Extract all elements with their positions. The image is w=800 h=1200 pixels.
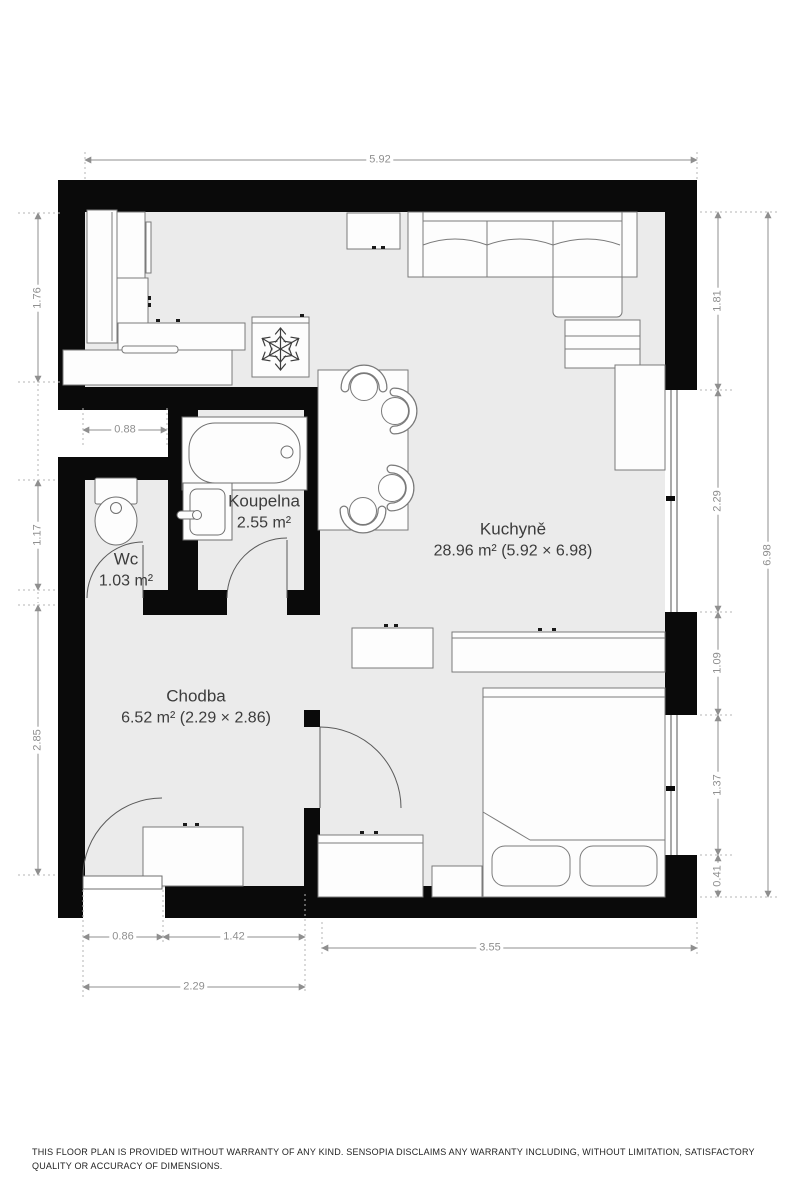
dim-label-bottom-3: 3.55 bbox=[476, 942, 503, 955]
sink-vanity bbox=[177, 483, 232, 540]
wall-right-lower bbox=[665, 855, 697, 918]
wall-bath-bottom-a bbox=[143, 590, 227, 615]
wall-bottom-left bbox=[58, 886, 83, 918]
kitchen-sink bbox=[122, 346, 178, 353]
dim-label-left-3: 2.85 bbox=[32, 726, 45, 753]
dim-label-right-5: 0.41 bbox=[712, 862, 725, 889]
room-label-koupelna: Koupelna 2.55 m² bbox=[228, 491, 300, 534]
floor-plan-page: 5.92 1.76 1.17 2.85 0.88 1.81 2.29 1.09 … bbox=[0, 0, 800, 1200]
bathtub bbox=[182, 417, 307, 490]
wall-left-lower bbox=[58, 457, 85, 918]
bed bbox=[483, 688, 665, 897]
wall-door-stub bbox=[304, 710, 320, 727]
dim-label-bottom-total: 2.29 bbox=[180, 981, 207, 994]
room-name: Chodba bbox=[121, 686, 271, 708]
pillow bbox=[580, 846, 657, 886]
room-area: 2.55 m² bbox=[228, 513, 300, 534]
dim-label-left-2: 1.17 bbox=[32, 521, 45, 548]
low-cabinet bbox=[432, 866, 482, 897]
washing-machine bbox=[318, 835, 423, 897]
freezer bbox=[252, 317, 309, 377]
toilet bbox=[95, 478, 137, 545]
dim-label-bottom-2: 1.42 bbox=[220, 931, 247, 944]
room-area: 1.03 m² bbox=[99, 571, 153, 592]
low-cabinet bbox=[352, 628, 433, 668]
wall-top bbox=[58, 180, 697, 212]
room-label-wc: Wc 1.03 m² bbox=[99, 549, 153, 592]
dim-label-top-width: 5.92 bbox=[366, 154, 393, 167]
wall-cabinet bbox=[347, 213, 400, 249]
room-label-chodba: Chodba 6.52 m² (2.29 × 2.86) bbox=[121, 686, 271, 729]
footer-disclaimer: THIS FLOOR PLAN IS PROVIDED WITHOUT WARR… bbox=[32, 1146, 772, 1174]
room-name: Wc bbox=[99, 549, 153, 571]
dim-label-right-1: 1.81 bbox=[712, 287, 725, 314]
room-name: Koupelna bbox=[228, 491, 300, 513]
drawer-side-table bbox=[565, 320, 640, 368]
dim-label-left-1: 1.76 bbox=[32, 284, 45, 311]
dim-label-bottom-1: 0.86 bbox=[109, 931, 136, 944]
room-label-kuchyne: Kuchyně 28.96 m² (5.92 × 6.98) bbox=[434, 519, 593, 562]
room-area: 6.52 m² (2.29 × 2.86) bbox=[121, 708, 271, 729]
window-right-upper bbox=[665, 390, 697, 612]
wall-right-upper bbox=[665, 180, 697, 390]
wardrobe bbox=[615, 365, 665, 470]
dim-label-right-4: 1.37 bbox=[712, 771, 725, 798]
dim-label-right-total: 6.98 bbox=[762, 541, 775, 568]
dim-label-right-2: 2.29 bbox=[712, 487, 725, 514]
pillow bbox=[492, 846, 570, 886]
wall-right-mid bbox=[665, 612, 697, 715]
dim-label-right-3: 1.09 bbox=[712, 649, 725, 676]
dim-label-wc-width: 0.88 bbox=[111, 424, 138, 437]
wall-kitchen-bath bbox=[58, 387, 320, 410]
room-name: Kuchyně bbox=[434, 519, 593, 541]
sideboard bbox=[452, 632, 665, 672]
room-area: 28.96 m² (5.92 × 6.98) bbox=[434, 541, 593, 562]
window-right-lower bbox=[665, 715, 697, 855]
